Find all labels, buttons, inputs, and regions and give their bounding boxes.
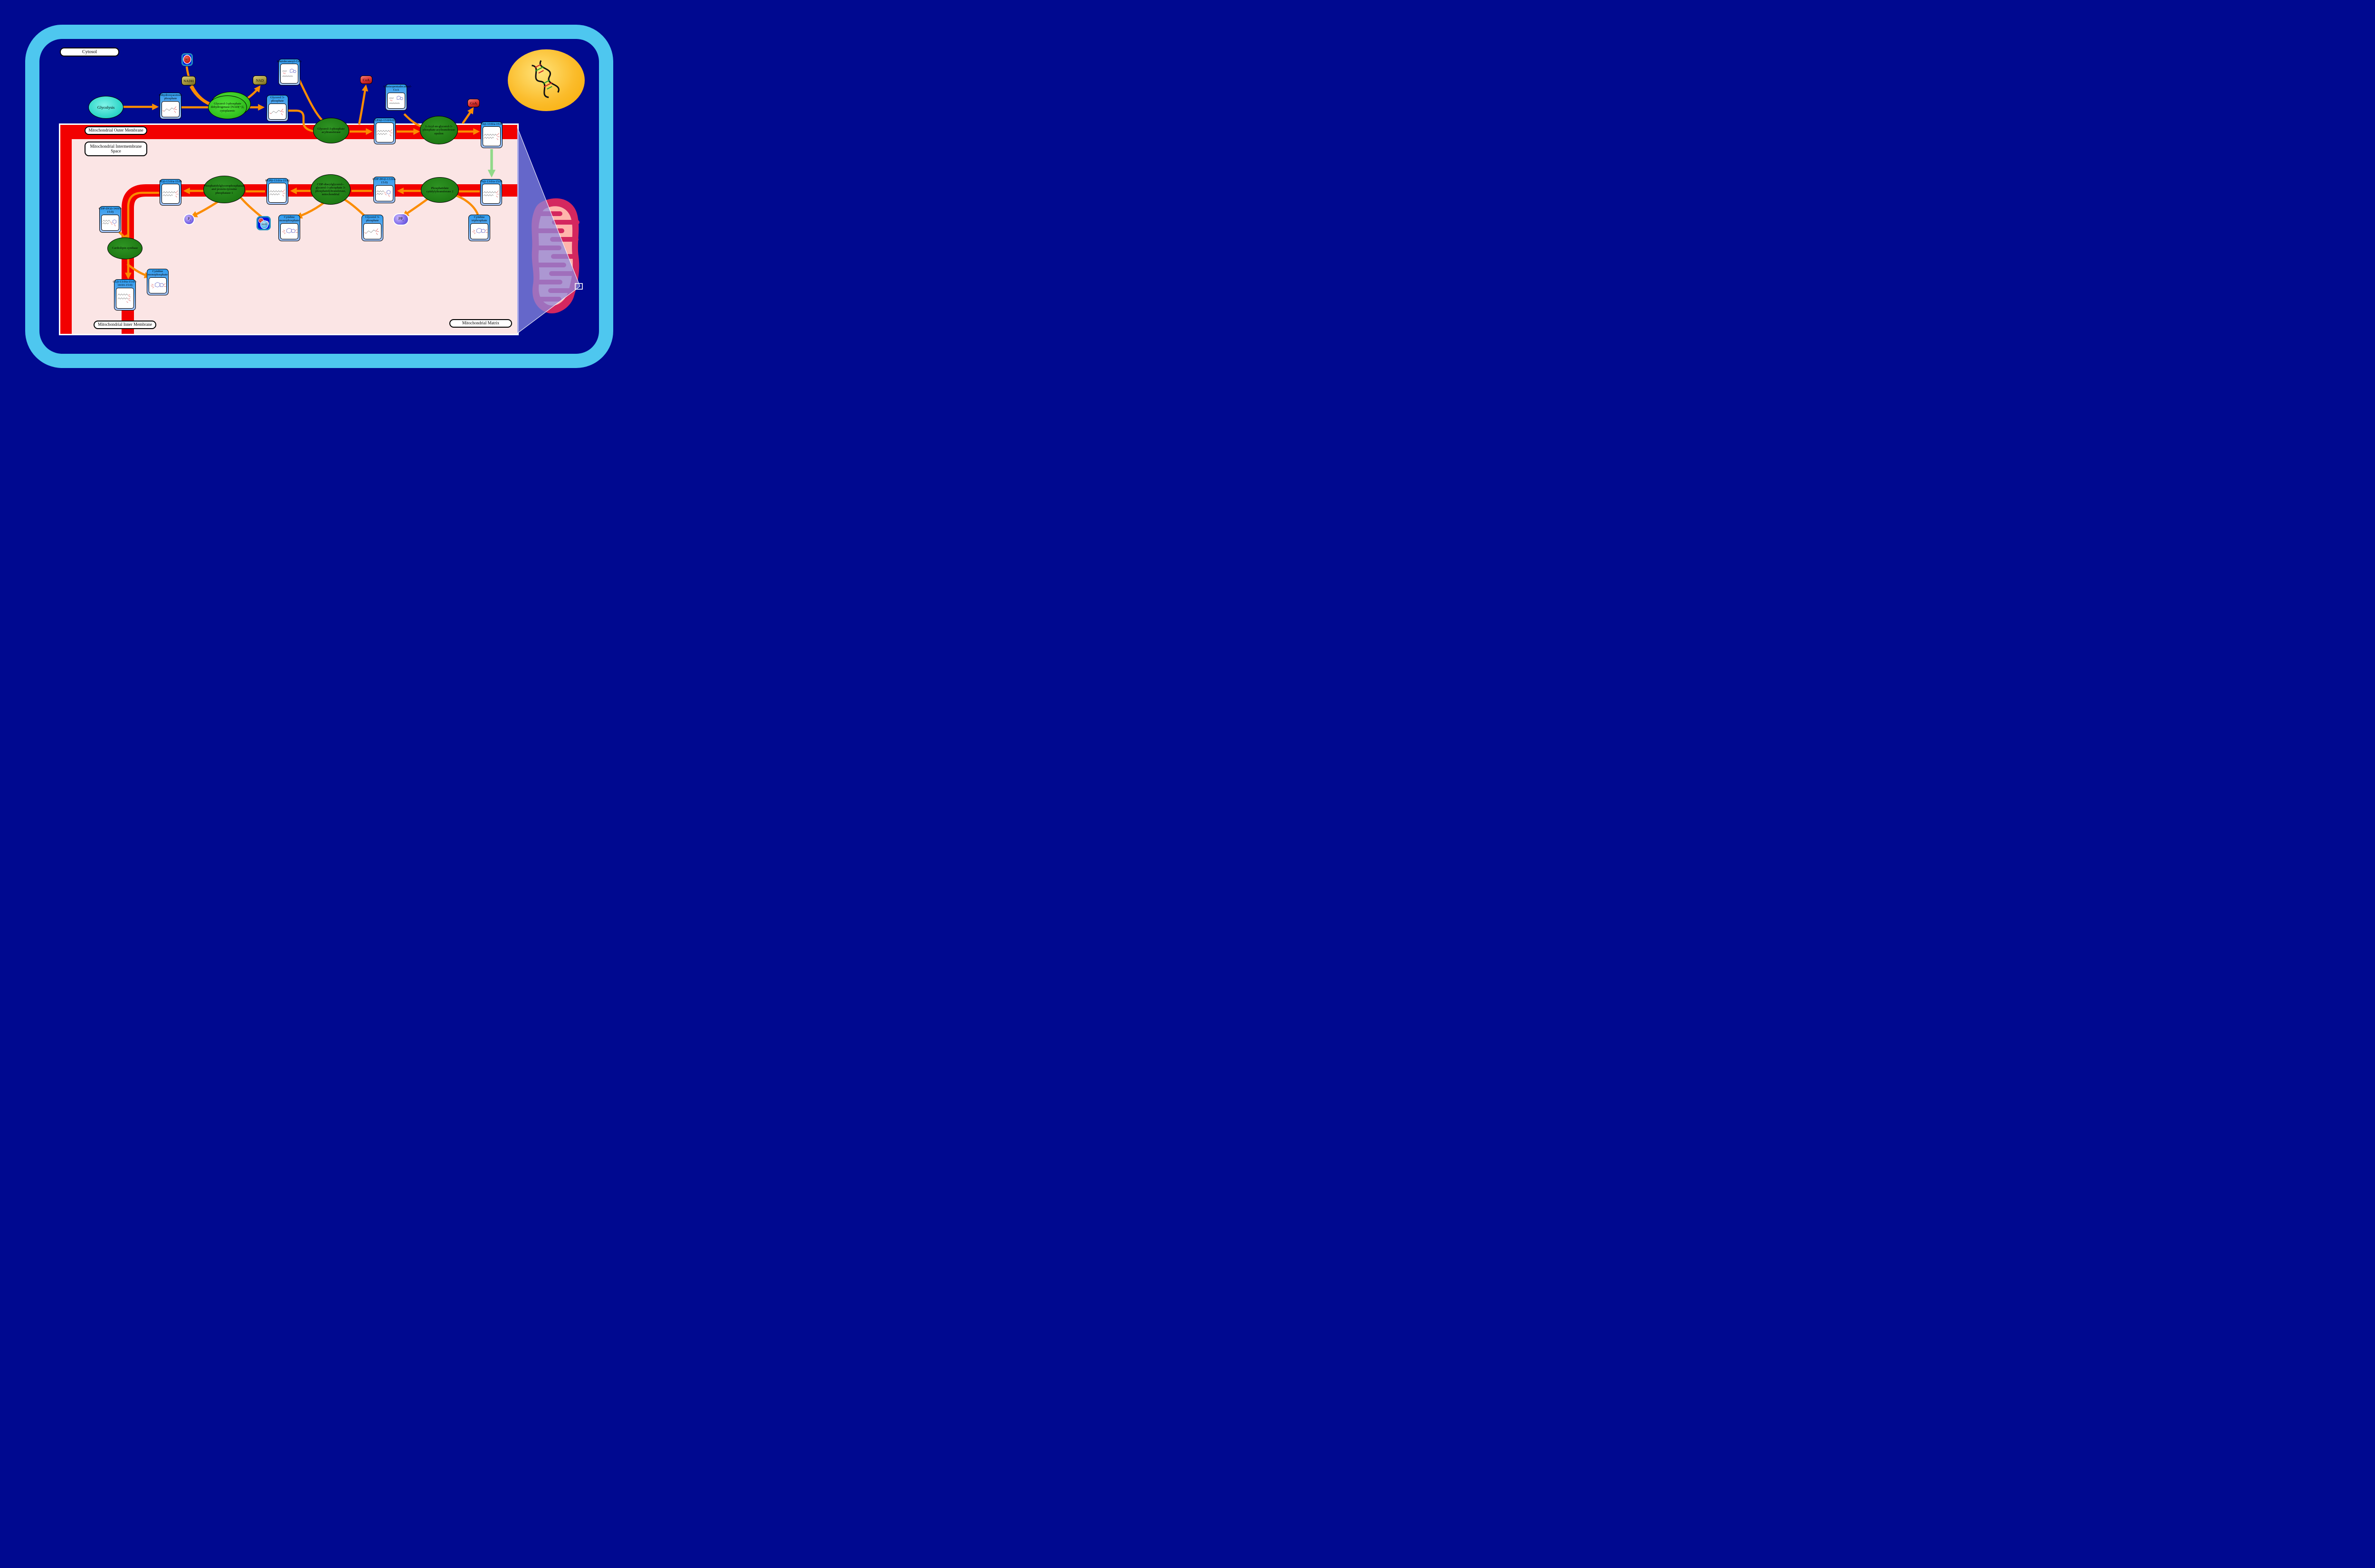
molecule-structure xyxy=(161,184,180,204)
enzyme-label: 1-Acyl-sn-glycerol-3-phosphate acyltrans… xyxy=(422,125,456,135)
metabolite-label: CL(i-13:0/a-15:0/i-14:0/i-15:0) xyxy=(112,280,138,287)
enzyme-label: CDP-diacylglycerol--glycerol-3-phosphate… xyxy=(313,183,349,196)
molecule-structure xyxy=(387,93,405,109)
species-ppi[interactable]: PPi xyxy=(394,214,408,225)
metabolite-label: Glycerol 3-phosphate xyxy=(264,96,291,103)
molecule-structure xyxy=(280,64,298,84)
enzyme-pcyt2[interactable]: Phosphatidate cytidylyltransferase 2 xyxy=(421,177,459,203)
species-label: NADH xyxy=(183,79,194,83)
label-text: Cytosol xyxy=(82,49,97,55)
metabolite-label: CDP-DG(i-13:0/a-15:0) xyxy=(371,178,398,185)
metabolite-pg[interactable]: PG(i-13:0/a-15:0) xyxy=(160,179,181,206)
species-nad[interactable]: NAD xyxy=(253,76,267,85)
nucleus-illustration xyxy=(508,49,585,111)
metabolite-label: LPA(i-13:0/0:0) xyxy=(371,119,398,122)
label-cytosol: Cytosol xyxy=(60,47,119,57)
label-text: Mitochondrial Matrix xyxy=(462,321,499,326)
metabolite-ctp[interactable]: Cytidine triphosphate xyxy=(468,215,490,241)
metabolite-label: Isotridecanoyl-CoA xyxy=(276,60,303,63)
metabolite-dhap[interactable]: Dihydroxyacetone phosphate xyxy=(160,93,181,119)
enzyme-label: Glycerol-3-phosphate dehydrogenase [NAD(… xyxy=(210,102,245,112)
dna-helix-icon xyxy=(526,56,565,103)
species-label: CoA xyxy=(470,101,477,105)
enzyme-label: Glycerol-3-phosphate acyltransferase xyxy=(315,127,347,134)
label-outer-membrane: Mitochondrial Outer Membrane xyxy=(85,126,147,135)
pathway-source-glycolysis[interactable]: Glycolysis xyxy=(88,96,123,119)
pathway-diagram: Cytosol Mitochondrial Outer Membrane Mit… xyxy=(0,0,641,392)
molecule-structure xyxy=(482,184,500,204)
species-nadh[interactable]: NADH xyxy=(181,76,196,85)
metabolite-label: PG(i-13:0/a-15:0) xyxy=(157,180,184,183)
molecule-structure xyxy=(149,277,167,293)
metabolite-label: CDP-DG(i-14:0/i-15:0) xyxy=(97,207,123,214)
metabolite-label: PA(i-13:0/a-15:0) xyxy=(478,123,505,126)
molecule-structure xyxy=(280,223,298,239)
metabolite-cdp-dg-13-15[interactable]: CDP-DG(i-13:0/a-15:0) xyxy=(373,177,395,203)
metabolite-label: Cytidine monophosphate xyxy=(276,216,303,223)
species-coa-1[interactable]: CoA xyxy=(360,76,372,84)
species-label: Pi xyxy=(188,217,190,222)
molecule-structure xyxy=(363,223,381,239)
metabolite-label: PA(i-13:0/a-15:0) xyxy=(478,180,504,183)
water-icon: H2O xyxy=(261,221,268,228)
metabolite-g3p-cytosol[interactable]: Glycerol 3-phosphate xyxy=(266,95,288,122)
enzyme-label: Cardiolipin synthase xyxy=(112,246,138,250)
molecule-structure xyxy=(116,288,134,309)
metabolite-label: Glycerol 3-phosphate xyxy=(359,216,386,223)
enzyme-label: Phosphatidylglycerophosphatase and prote… xyxy=(204,184,245,194)
molecule-structure xyxy=(376,123,394,142)
molecule-structure xyxy=(268,104,286,120)
metabolite-isotridecanoyl-coa[interactable]: Isotridecanoyl-CoA xyxy=(278,59,300,85)
enzyme-agpat-epsilon[interactable]: 1-Acyl-sn-glycerol-3-phosphate acyltrans… xyxy=(420,116,458,144)
metabolite-cdp-dg-14-15[interactable]: CDP-DG(i-14:0/i-15:0) xyxy=(99,206,121,233)
metabolite-label: Cytidine monophosphate xyxy=(144,270,171,277)
molecule-structure xyxy=(470,223,488,239)
molecule-structure xyxy=(375,185,393,201)
molecule-structure xyxy=(101,215,119,231)
label-matrix: Mitochondrial Matrix xyxy=(449,319,512,328)
species-coa-2[interactable]: CoA xyxy=(467,99,480,107)
species-h2o[interactable]: H2O xyxy=(256,216,271,230)
source-label: Glycolysis xyxy=(97,105,114,110)
metabolite-cmp-matrix-left[interactable]: Cytidine monophosphate xyxy=(147,269,169,295)
metabolite-pgp[interactable]: PGP(i-13:0/a-15:0) xyxy=(266,178,288,205)
molecule-structure xyxy=(268,183,286,203)
metabolite-anteisopentadecanoyl-coa[interactable]: Anteisopentadecanoyl-CoA xyxy=(385,84,407,111)
label-inner-membrane: Mitochondrial Inner Membrane xyxy=(94,321,156,329)
enzyme-crls1[interactable]: Cardiolipin synthase xyxy=(107,237,142,259)
enzyme-pgs1[interactable]: CDP-diacylglycerol--glycerol-3-phosphate… xyxy=(311,174,351,205)
metabolite-pa-outer[interactable]: PA(i-13:0/a-15:0) xyxy=(481,122,503,148)
label-text: Mitochondrial Outer Membrane xyxy=(88,128,143,133)
metabolite-label: Cytidine triphosphate xyxy=(466,216,493,223)
enzyme-label: Phosphatidate cytidylyltransferase 2 xyxy=(423,187,457,193)
metabolite-label: Dihydroxyacetone phosphate xyxy=(157,94,184,101)
molecule-structure xyxy=(483,126,501,146)
enzyme-gpd1[interactable]: Glycerol-3-phosphate dehydrogenase [NAD(… xyxy=(208,95,247,119)
metabolite-g3p-matrix[interactable]: Glycerol 3-phosphate xyxy=(361,215,383,241)
species-h-plus[interactable]: H+ xyxy=(181,53,193,66)
species-label: NAD xyxy=(256,78,264,83)
mitochondrion-illustration xyxy=(527,197,589,318)
molecule-structure xyxy=(161,101,180,117)
species-label: CoA xyxy=(363,78,370,82)
species-pi[interactable]: Pi xyxy=(184,215,194,224)
species-label: PPi xyxy=(399,217,403,222)
enzyme-gpat[interactable]: Glycerol-3-phosphate acyltransferase xyxy=(313,118,349,143)
metabolite-cmp-matrix-mid[interactable]: Cytidine monophosphate xyxy=(278,215,300,241)
enzyme-ptpmt1[interactable]: Phosphatidylglycerophosphatase and prote… xyxy=(203,176,245,203)
metabolite-pa-inner[interactable]: PA(i-13:0/a-15:0) xyxy=(480,179,502,206)
label-text: Mitochondrial Intermembrane Space xyxy=(86,144,145,154)
metabolite-lpa[interactable]: LPA(i-13:0/0:0) xyxy=(374,118,396,144)
proton-icon: H+ xyxy=(184,56,190,63)
metabolite-label: PGP(i-13:0/a-15:0) xyxy=(264,179,291,182)
metabolite-cl[interactable]: CL(i-13:0/a-15:0/i-14:0/i-15:0) xyxy=(114,279,136,311)
metabolite-label: Anteisopentadecanoyl-CoA xyxy=(383,85,409,92)
label-intermembrane-space: Mitochondrial Intermembrane Space xyxy=(85,142,147,156)
label-text: Mitochondrial Inner Membrane xyxy=(98,322,152,327)
